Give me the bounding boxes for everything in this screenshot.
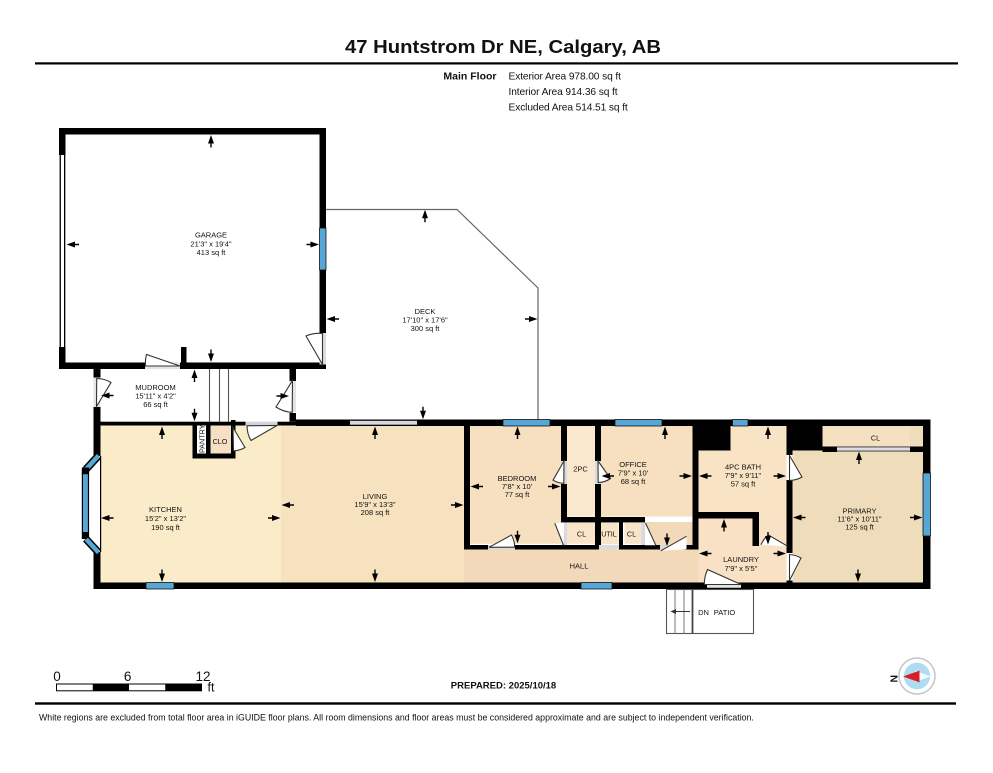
svg-text:190 sq ft: 190 sq ft [151,523,181,532]
svg-text:300 sq ft: 300 sq ft [411,324,441,333]
svg-text:KITCHEN: KITCHEN [149,505,182,514]
svg-text:413 sq ft: 413 sq ft [197,248,227,257]
svg-text:CL: CL [627,530,636,539]
svg-text:DN: DN [698,608,709,617]
svg-text:7'9" x 5'5": 7'9" x 5'5" [725,564,758,573]
svg-text:GARAGE: GARAGE [195,231,227,240]
svg-text:ft: ft [208,681,215,695]
svg-text:15'2" x 13'2": 15'2" x 13'2" [145,514,186,523]
svg-text:HALL: HALL [570,562,589,571]
svg-text:UTIL: UTIL [601,530,617,539]
svg-text:6: 6 [124,669,132,684]
svg-text:White regions are excluded fro: White regions are excluded from total fl… [39,713,754,723]
svg-text:57 sq ft: 57 sq ft [731,480,757,489]
svg-text:208 sq ft: 208 sq ft [361,508,391,517]
svg-text:66 sq ft: 66 sq ft [143,400,169,409]
svg-text:CLO: CLO [213,437,228,446]
svg-text:0: 0 [53,669,61,684]
svg-text:Exterior Area 978.00 sq ft: Exterior Area 978.00 sq ft [509,72,622,83]
svg-text:CL: CL [871,434,880,443]
svg-text:Interior Area 914.36 sq ft: Interior Area 914.36 sq ft [509,87,618,98]
svg-text:PREPARED: 2025/10/18: PREPARED: 2025/10/18 [451,681,556,692]
svg-text:N: N [889,675,901,683]
svg-text:2PC: 2PC [573,465,588,474]
svg-text:77 sq ft: 77 sq ft [505,490,531,499]
svg-text:125 sq ft: 125 sq ft [845,523,875,532]
svg-text:PANTRY: PANTRY [198,424,207,453]
svg-text:47 Huntstrom Dr NE, Calgary, A: 47 Huntstrom Dr NE, Calgary, AB [345,37,661,57]
svg-text:LAUNDRY: LAUNDRY [723,555,759,564]
svg-text:68 sq ft: 68 sq ft [621,477,647,486]
svg-text:PATIO: PATIO [714,608,736,617]
svg-text:Main Floor: Main Floor [443,71,496,83]
svg-text:CL: CL [577,530,586,539]
svg-text:Excluded Area 514.51 sq ft: Excluded Area 514.51 sq ft [509,103,628,114]
